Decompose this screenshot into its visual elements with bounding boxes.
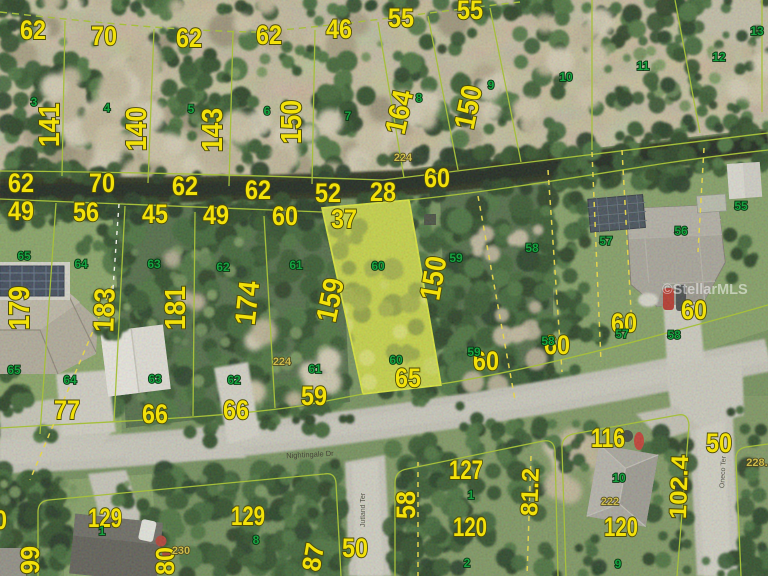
svg-text:13: 13 [750, 24, 764, 38]
svg-text:230: 230 [172, 545, 190, 557]
svg-text:224: 224 [273, 356, 292, 368]
svg-text:62: 62 [245, 175, 271, 205]
svg-text:61: 61 [308, 362, 322, 376]
svg-text:181: 181 [160, 286, 192, 330]
svg-text:37: 37 [331, 204, 357, 234]
svg-text:77: 77 [54, 395, 80, 425]
svg-text:63: 63 [148, 372, 162, 386]
svg-text:60: 60 [389, 353, 403, 367]
svg-text:50: 50 [706, 428, 732, 458]
svg-text:63: 63 [147, 257, 161, 271]
svg-text:129: 129 [231, 501, 265, 531]
svg-text:81.2: 81.2 [516, 468, 545, 517]
svg-text:62: 62 [256, 20, 282, 50]
svg-text:58: 58 [541, 334, 555, 348]
svg-text:9: 9 [615, 557, 622, 571]
svg-text:150: 150 [276, 100, 308, 144]
svg-text:64: 64 [74, 257, 88, 271]
svg-text:50: 50 [342, 533, 368, 563]
svg-text:Jutland Ter: Jutland Ter [360, 492, 367, 527]
svg-text:58: 58 [667, 328, 681, 342]
svg-text:70: 70 [91, 21, 117, 51]
svg-text:57: 57 [615, 327, 629, 341]
svg-text:224: 224 [394, 152, 413, 164]
svg-text:60: 60 [371, 259, 385, 273]
svg-text:62: 62 [176, 23, 202, 53]
svg-text:©StellarMLS: ©StellarMLS [662, 282, 748, 298]
svg-text:62: 62 [227, 373, 241, 387]
svg-text:9: 9 [488, 78, 495, 92]
svg-text:143: 143 [197, 108, 229, 152]
svg-text:127: 127 [449, 455, 483, 485]
svg-text:28: 28 [370, 177, 396, 207]
svg-text:6: 6 [264, 104, 271, 118]
svg-text:65: 65 [17, 249, 31, 263]
svg-text:1: 1 [468, 488, 475, 502]
svg-text:55: 55 [388, 3, 414, 33]
svg-text:228.: 228. [746, 457, 767, 469]
svg-text:60: 60 [272, 201, 298, 231]
svg-text:45: 45 [142, 199, 168, 229]
svg-text:174: 174 [230, 280, 266, 327]
svg-text:66: 66 [223, 395, 249, 425]
svg-text:102.4: 102.4 [665, 454, 694, 520]
svg-text:60: 60 [681, 295, 707, 325]
svg-text:66: 66 [142, 399, 168, 429]
svg-text:4: 4 [104, 101, 111, 115]
svg-text:183: 183 [88, 287, 122, 332]
svg-text:5: 5 [188, 102, 195, 116]
svg-text:3: 3 [31, 95, 38, 109]
svg-text:10: 10 [559, 70, 573, 84]
svg-text:2: 2 [464, 556, 471, 570]
svg-text:56: 56 [674, 224, 688, 238]
svg-text:12: 12 [712, 50, 726, 64]
svg-text:141: 141 [34, 103, 66, 147]
svg-text:46: 46 [326, 14, 352, 44]
svg-text:65: 65 [395, 363, 421, 393]
svg-text:120: 120 [453, 512, 487, 542]
svg-text:116: 116 [591, 423, 625, 453]
svg-text:50: 50 [0, 505, 7, 535]
svg-text:62: 62 [172, 171, 198, 201]
svg-text:222: 222 [601, 496, 619, 508]
svg-text:70: 70 [89, 168, 115, 198]
svg-text:59: 59 [449, 251, 463, 265]
svg-text:140: 140 [121, 107, 153, 151]
svg-text:56: 56 [73, 197, 99, 227]
svg-text:99: 99 [15, 546, 45, 574]
svg-text:49: 49 [8, 196, 34, 226]
svg-text:49: 49 [203, 200, 229, 230]
svg-text:62: 62 [216, 260, 230, 274]
svg-text:60: 60 [424, 163, 450, 193]
svg-text:64: 64 [63, 373, 77, 387]
svg-text:62: 62 [20, 15, 46, 45]
svg-text:59: 59 [467, 345, 481, 359]
svg-text:8: 8 [416, 91, 423, 105]
svg-text:179: 179 [4, 286, 36, 330]
svg-text:65: 65 [7, 363, 21, 377]
svg-text:61: 61 [289, 258, 303, 272]
svg-text:62: 62 [8, 168, 34, 198]
svg-text:55: 55 [457, 0, 483, 25]
svg-text:87: 87 [296, 541, 330, 574]
svg-text:58: 58 [525, 241, 539, 255]
svg-text:58: 58 [391, 491, 421, 519]
svg-text:1: 1 [99, 524, 106, 538]
svg-text:11: 11 [637, 59, 650, 73]
svg-text:55: 55 [734, 199, 748, 213]
svg-text:10: 10 [612, 471, 626, 485]
svg-text:7: 7 [345, 109, 352, 123]
svg-text:120: 120 [604, 512, 638, 542]
svg-text:57: 57 [599, 234, 613, 248]
svg-text:8: 8 [253, 533, 260, 547]
svg-text:59: 59 [301, 381, 327, 411]
